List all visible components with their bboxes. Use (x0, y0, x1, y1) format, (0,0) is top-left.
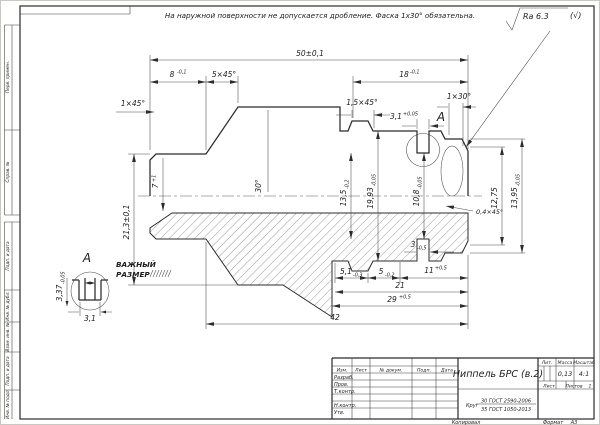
sheet-label: Лист (542, 384, 555, 390)
material-top: 30 ГОСТ 2590-2006 (481, 399, 531, 405)
header-scale: Масштаб (573, 360, 595, 366)
roughness-alt: (√) (570, 11, 581, 20)
row-tcontr: Т.контр. (334, 389, 356, 395)
part-name: Ниппель БРС (в.2) (453, 369, 543, 380)
dim-chamfer-15x45: 1,5×45° (346, 98, 378, 107)
col-list: Лист (354, 367, 367, 373)
important-note-line2: РАЗМЕР (116, 270, 150, 279)
dim-w3: 3 (411, 240, 416, 249)
dim-len8: 8 (170, 70, 175, 79)
dim-len18: 18 (399, 70, 409, 79)
scale-value: 4:1 (579, 370, 589, 378)
col-doc: № докум. (379, 367, 403, 373)
view-a-callout: А (436, 110, 445, 124)
detail-dim-337: 3,37 (55, 284, 64, 301)
row-utv: Утв. (334, 410, 345, 416)
detail-dim-31: 3,1 (84, 314, 96, 323)
dim-len29-tol: +0,5 (399, 295, 411, 301)
engineering-drawing: Перв. примен. Справ. № Подп. и дата Инв.… (0, 0, 600, 425)
dim-chamfer-5x45: 5×45° (212, 70, 237, 79)
row-ncontr: Н.контр. (334, 403, 356, 409)
header-lit: Лит. (541, 360, 553, 366)
dim-total-length: 50±0,1 (296, 49, 324, 58)
mass-value: 0,13 (558, 370, 572, 378)
dim-depth7: 7 (151, 183, 160, 188)
row-razrab: Разраб. (334, 375, 354, 381)
dim-dia108-tol: -0,05 (418, 176, 424, 189)
sheets-label: Листов (564, 384, 582, 390)
dim-dia1395-tol: -0,05 (516, 174, 522, 187)
dim-dia108: 10,8 (412, 189, 421, 206)
col-date: Дата (440, 367, 453, 373)
dim-w11-tol: +0,5 (435, 266, 447, 272)
dim-groove-31: 3,1 (390, 112, 402, 121)
detail-dim-337-tol: -0,05 (61, 271, 67, 284)
stamp-vzam-inv: Взам. инв. № (5, 322, 11, 352)
dim-dia1395: 13,95 (510, 187, 519, 209)
important-note-line1: ВАЖНЫЙ (116, 260, 156, 269)
dim-len21: 21 (395, 281, 405, 290)
dim-len18-tol: -0,1 (410, 70, 420, 76)
stamp-inv-podl: Инв. № подл. (5, 389, 11, 419)
dim-dia1993: 19,93 (366, 187, 375, 209)
dim-w3-tol: -0,5 (417, 246, 427, 252)
dim-groove-31-tol: +0,05 (403, 112, 418, 118)
kopiroval-label: Копировал (452, 420, 481, 425)
dim-dia213: 21,3±0,1 (122, 205, 131, 240)
stamp-perv-primen: Перв. примен. (5, 61, 11, 93)
dim-chamfer-1x45: 1×45° (121, 99, 146, 108)
dim-w51: 5,1 (340, 267, 352, 276)
material-prefix: Круг (466, 403, 479, 409)
dim-chamfer-1x30: 1×30° (447, 92, 472, 101)
detail-a-label: А (82, 251, 91, 265)
stamp-sprav-no: Справ. № (5, 161, 11, 182)
header-mass: Масса (558, 360, 573, 366)
dim-angle30: 30° (254, 179, 263, 193)
row-prov: Пров. (334, 382, 349, 388)
dim-w5: 5 (379, 267, 384, 276)
format-value: А3 (570, 420, 578, 425)
stamp-podp-data-2: Подп. и дата (5, 356, 11, 386)
stamp-podp-data-1: Подп. и дата (5, 241, 11, 271)
dim-len29: 29 (387, 295, 397, 304)
col-sign: Подп. (417, 367, 431, 373)
dim-w11: 11 (424, 266, 434, 275)
dim-w5-tol: -0,2 (385, 273, 395, 279)
format-label: Формат (543, 420, 564, 425)
dim-w51-tol: -0,3 (353, 273, 363, 279)
col-izm: Изм. (337, 367, 348, 373)
stamp-inv-dubl: Инв. № дубл. (5, 291, 11, 320)
roughness-value: Ra 6.3 (523, 12, 549, 21)
material-bottom: 35 ГОСТ 1050-2013 (481, 407, 531, 413)
dim-len8-tol: -0,1 (177, 70, 187, 76)
dim-dia135-tol: -0,2 (345, 179, 351, 189)
dim-dia135: 13,5 (339, 189, 348, 206)
dim-depth7-tol: +1 (152, 175, 158, 182)
technical-note: На наружной поверхности не допускается д… (165, 11, 475, 20)
sheets-value: 1 (589, 384, 592, 390)
drawing-sheet: Перв. примен. Справ. № Подп. и дата Инв.… (0, 0, 600, 425)
dim-dia1275: 12,75 (490, 187, 499, 209)
dim-dia1993-tol: -0,05 (372, 174, 378, 187)
dim-len42: 42 (330, 313, 340, 322)
